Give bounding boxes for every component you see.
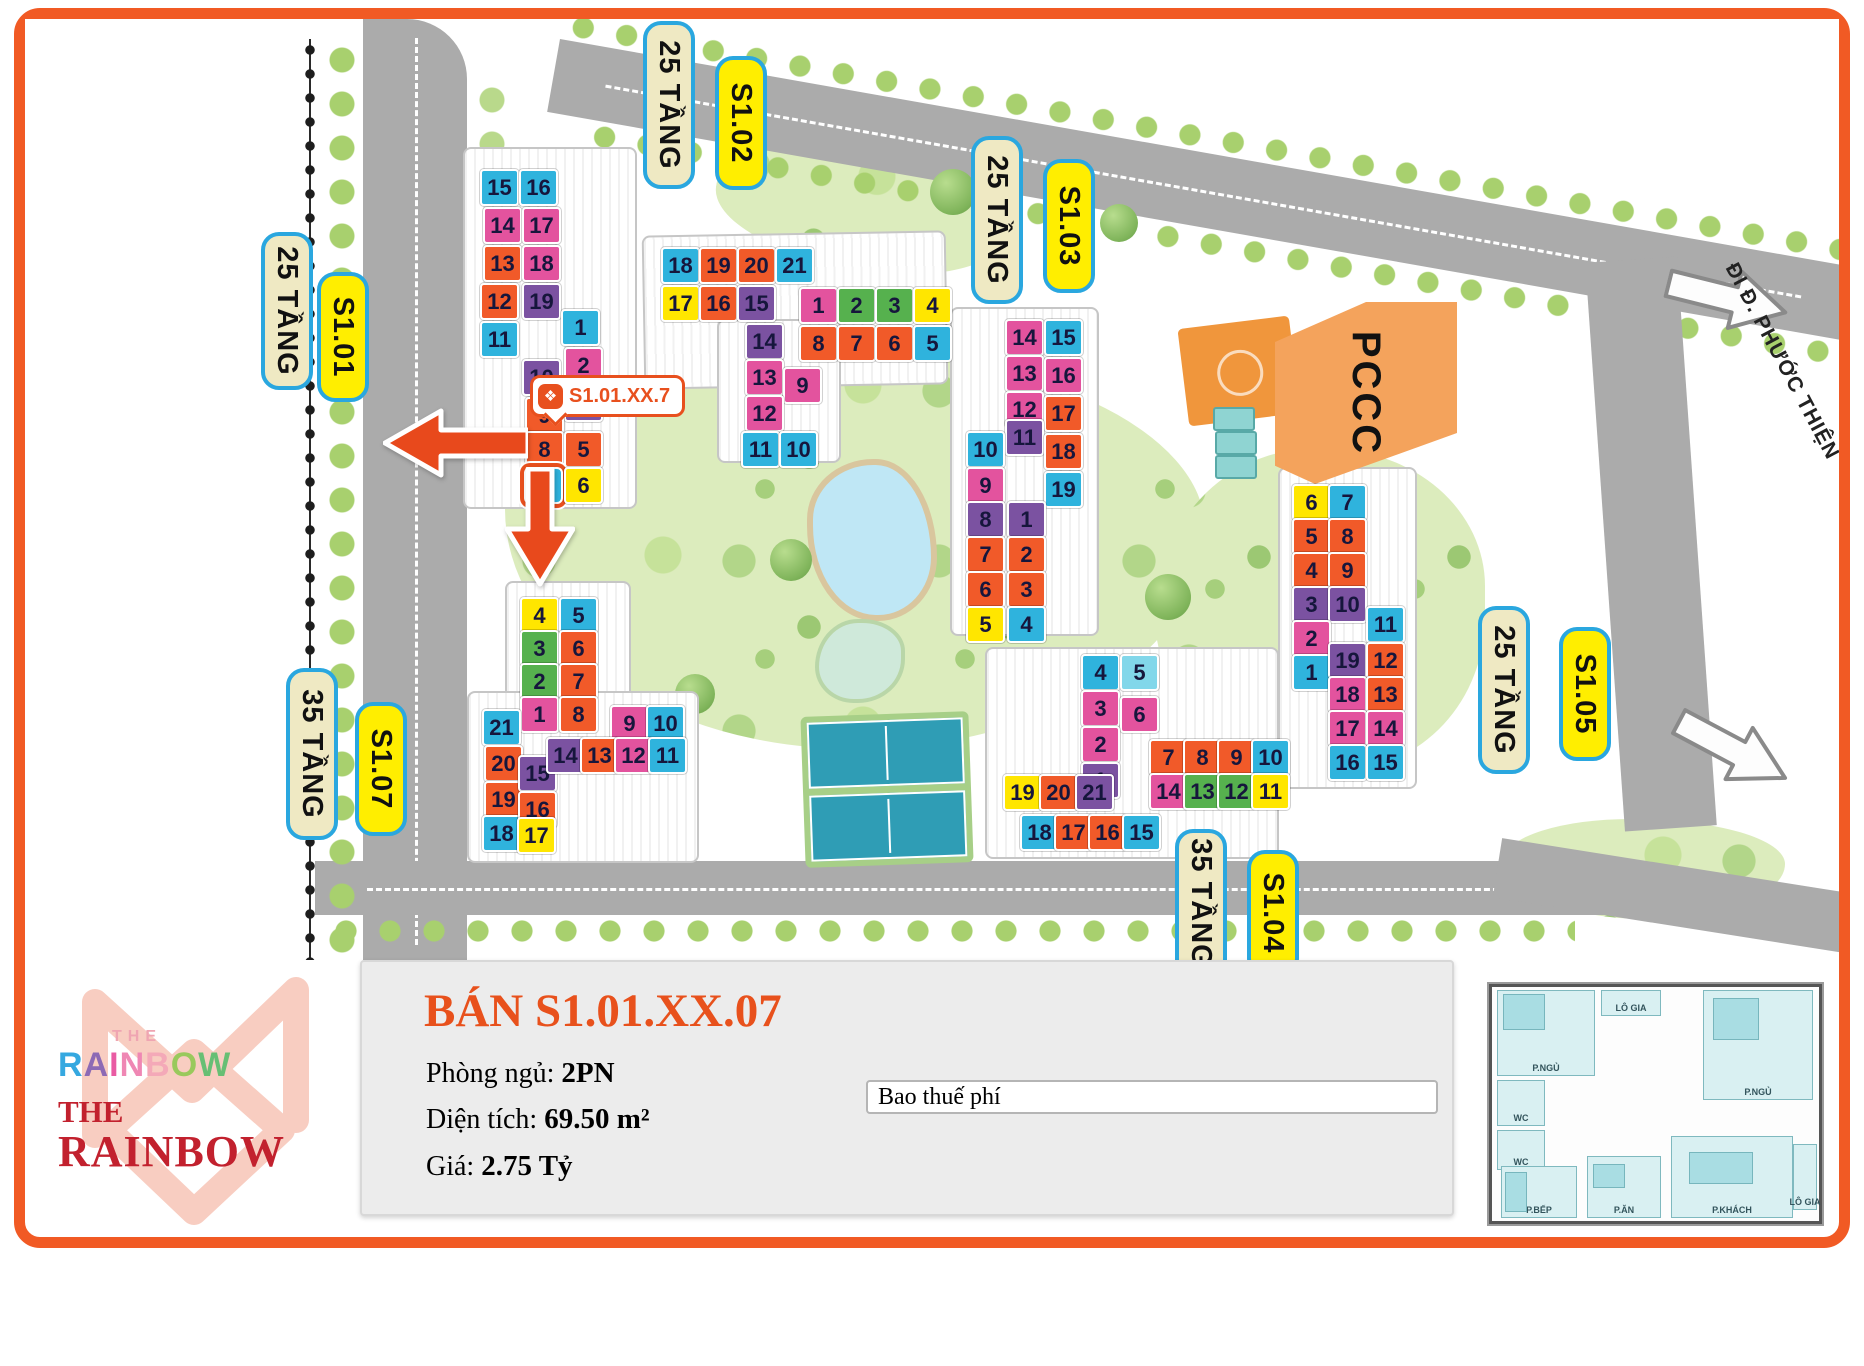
unit-tile-S1.02-11[interactable]: 11 xyxy=(741,431,780,468)
logo-letter: W xyxy=(198,1046,231,1084)
unit-tile-S1.04-20[interactable]: 20 xyxy=(1039,774,1078,811)
pccc-label: PCCC xyxy=(1344,330,1389,455)
south-pointer-arrow-icon xyxy=(505,467,575,587)
unit-tile-S1.07-3[interactable]: 3 xyxy=(520,630,559,667)
unit-tile-S1.05-13[interactable]: 13 xyxy=(1366,676,1405,713)
unit-marker-label: S1.01.XX.7 xyxy=(569,385,670,408)
unit-tile-S1.05-1[interactable]: 1 xyxy=(1292,654,1331,691)
label-floors-s105: 25 TẦNG xyxy=(1478,606,1530,774)
area-row: Diện tích: 69.50 m² xyxy=(426,1103,650,1136)
unit-tile-S1.04-5[interactable]: 5 xyxy=(1120,654,1159,691)
unit-tile-S1.05-7[interactable]: 7 xyxy=(1328,484,1367,521)
unit-tile-S1.04-6[interactable]: 6 xyxy=(1120,696,1159,733)
bottom-treeline xyxy=(325,919,1575,943)
furniture xyxy=(1505,1172,1527,1212)
unit-tile-S1.03-9[interactable]: 9 xyxy=(966,467,1005,504)
unit-tile-S1.02-8[interactable]: 8 xyxy=(799,325,838,362)
playground-equipment xyxy=(1215,455,1257,479)
unit-tile-S1.01-18[interactable]: 18 xyxy=(522,245,561,282)
listing-title: BÁN S1.01.XX.07 xyxy=(424,984,782,1038)
logo-the-serif: THE xyxy=(58,1094,123,1130)
unit-tile-S1.03-19[interactable]: 19 xyxy=(1044,471,1083,508)
label-building-s101: S1.01 xyxy=(317,272,369,402)
unit-tile-S1.03-8[interactable]: 8 xyxy=(966,501,1005,538)
unit-tile-S1.07-18[interactable]: 18 xyxy=(482,815,521,852)
unit-tile-S1.01-1[interactable]: 1 xyxy=(561,309,600,346)
unit-tile-S1.03-1[interactable]: 1 xyxy=(1007,501,1046,538)
logo-rainbow-serif: RAINBOW xyxy=(58,1126,285,1177)
room-label: P.ĂN xyxy=(1614,1205,1634,1217)
logo-the-small: THE xyxy=(112,1028,162,1046)
logo-letter: R xyxy=(58,1046,84,1084)
label-building-s105: S1.05 xyxy=(1559,627,1611,761)
listing-panel: BÁN S1.01.XX.07 Phòng ngủ: 2PN Diện tích… xyxy=(360,960,1454,1216)
unit-tile-S1.05-5[interactable]: 5 xyxy=(1292,518,1331,555)
unit-tile-S1.01-17[interactable]: 17 xyxy=(522,207,561,244)
room-3: WC xyxy=(1497,1080,1545,1126)
unit-tile-S1.03-2[interactable]: 2 xyxy=(1007,536,1046,573)
unit-tile-S1.07-17[interactable]: 17 xyxy=(517,817,556,854)
unit-tile-S1.02-1[interactable]: 1 xyxy=(799,287,838,324)
unit-tile-S1.02-21[interactable]: 21 xyxy=(775,247,814,284)
playground-equipment xyxy=(1213,407,1255,431)
room-8: LÔ GIA xyxy=(1793,1144,1817,1210)
unit-tile-S1.05-12[interactable]: 12 xyxy=(1366,642,1405,679)
unit-tile-S1.04-4[interactable]: 4 xyxy=(1081,654,1120,691)
unit-marker[interactable]: ❖ S1.01.XX.7 xyxy=(530,375,685,417)
unit-tile-S1.07-2[interactable]: 2 xyxy=(520,663,559,700)
label-floors-s102: 25 TẦNG xyxy=(643,21,695,189)
unit-tile-S1.01-13[interactable]: 13 xyxy=(483,245,522,282)
unit-tile-S1.05-6[interactable]: 6 xyxy=(1292,484,1331,521)
unit-tile-S1.02-3[interactable]: 3 xyxy=(875,287,914,324)
unit-tile-S1.01-14[interactable]: 14 xyxy=(483,207,522,244)
unit-tile-S1.05-3[interactable]: 3 xyxy=(1292,586,1331,623)
unit-tile-S1.02-16[interactable]: 16 xyxy=(699,285,738,322)
unit-tile-S1.03-13[interactable]: 13 xyxy=(1005,355,1044,392)
unit-tile-S1.02-15[interactable]: 15 xyxy=(737,285,776,322)
unit-tile-S1.03-11[interactable]: 11 xyxy=(1005,419,1044,456)
unit-tile-S1.05-15[interactable]: 15 xyxy=(1366,744,1405,781)
unit-tile-S1.05-8[interactable]: 8 xyxy=(1328,518,1367,555)
price-row: Giá: 2.75 Tỷ xyxy=(426,1150,573,1183)
unit-tile-S1.02-10[interactable]: 10 xyxy=(779,431,818,468)
unit-tile-S1.07-1[interactable]: 1 xyxy=(520,696,559,733)
room-label: P.NGỦ xyxy=(1532,1063,1559,1075)
unit-tile-S1.03-16[interactable]: 16 xyxy=(1044,357,1083,394)
unit-tile-S1.05-19[interactable]: 19 xyxy=(1328,642,1367,679)
unit-tile-S1.01-5[interactable]: 5 xyxy=(564,431,603,468)
unit-tile-S1.04-2[interactable]: 2 xyxy=(1081,726,1120,763)
unit-tile-S1.05-17[interactable]: 17 xyxy=(1328,710,1367,747)
unit-tile-S1.04-10[interactable]: 10 xyxy=(1251,739,1290,776)
unit-tile-S1.02-20[interactable]: 20 xyxy=(737,247,776,284)
unit-tile-S1.02-12[interactable]: 12 xyxy=(745,395,784,432)
unit-tile-S1.02-4[interactable]: 4 xyxy=(913,287,952,324)
pccc-zone: PCCC xyxy=(1275,302,1457,484)
label-building-s103: S1.03 xyxy=(1043,159,1095,293)
note-input[interactable] xyxy=(866,1080,1438,1114)
bottom-road xyxy=(315,861,1605,915)
unit-tile-S1.02-19[interactable]: 19 xyxy=(699,247,738,284)
unit-tile-S1.05-14[interactable]: 14 xyxy=(1366,710,1405,747)
label-floors-s101: 25 TẦNG xyxy=(261,232,313,390)
furniture xyxy=(1593,1164,1625,1188)
brand-logo: THE RAINBOW THE RAINBOW xyxy=(58,958,368,1238)
unit-tile-S1.03-4[interactable]: 4 xyxy=(1007,606,1046,643)
unit-tile-S1.07-8[interactable]: 8 xyxy=(559,696,598,733)
unit-tile-S1.03-7[interactable]: 7 xyxy=(966,536,1005,573)
unit-tile-S1.02-18[interactable]: 18 xyxy=(661,247,700,284)
room-label: LÔ GIA xyxy=(1616,1003,1647,1015)
unit-tile-S1.05-11[interactable]: 11 xyxy=(1366,606,1405,643)
room-4: WC xyxy=(1497,1130,1545,1170)
unit-tile-S1.05-16[interactable]: 16 xyxy=(1328,744,1367,781)
furniture xyxy=(1503,994,1545,1030)
unit-tile-S1.05-10[interactable]: 10 xyxy=(1328,586,1367,623)
unit-tile-S1.07-6[interactable]: 6 xyxy=(559,630,598,667)
unit-tile-S1.05-18[interactable]: 18 xyxy=(1328,676,1367,713)
label-building-s107: S1.07 xyxy=(355,702,407,836)
rainbow-logo-icon: ❖ xyxy=(538,384,563,409)
unit-tile-S1.03-6[interactable]: 6 xyxy=(966,571,1005,608)
bedrooms-value: 2PN xyxy=(561,1057,614,1089)
unit-tile-S1.04-11[interactable]: 11 xyxy=(1251,773,1290,810)
unit-tile-S1.02-9[interactable]: 9 xyxy=(783,367,822,404)
room-1: LÔ GIA xyxy=(1601,990,1661,1016)
label-floors-s103: 25 TẦNG xyxy=(971,136,1023,304)
unit-tile-S1.02-2[interactable]: 2 xyxy=(837,287,876,324)
unit-tile-S1.05-2[interactable]: 2 xyxy=(1292,620,1331,657)
unit-tile-S1.03-3[interactable]: 3 xyxy=(1007,571,1046,608)
unit-tile-S1.01-16[interactable]: 16 xyxy=(519,169,558,206)
unit-tile-S1.02-7[interactable]: 7 xyxy=(837,325,876,362)
unit-tile-S1.05-4[interactable]: 4 xyxy=(1292,552,1331,589)
area-value: 69.50 m² xyxy=(544,1103,649,1135)
unit-tile-S1.03-5[interactable]: 5 xyxy=(966,606,1005,643)
room-label: P.BẾP xyxy=(1526,1205,1552,1217)
unit-tile-S1.03-10[interactable]: 10 xyxy=(966,431,1005,468)
unit-tile-S1.01-8[interactable]: 8 xyxy=(525,431,564,468)
unit-tile-S1.04-15[interactable]: 15 xyxy=(1122,814,1161,851)
playground-equipment xyxy=(1215,431,1257,455)
unit-tile-S1.07-7[interactable]: 7 xyxy=(559,663,598,700)
room-label: WC xyxy=(1514,1113,1529,1125)
unit-tile-S1.01-19[interactable]: 19 xyxy=(522,283,561,320)
unit-tile-S1.02-5[interactable]: 5 xyxy=(913,325,952,362)
unit-tile-S1.07-5[interactable]: 5 xyxy=(559,597,598,634)
unit-tile-S1.02-17[interactable]: 17 xyxy=(661,285,700,322)
room-label: LÔ GIA xyxy=(1790,1197,1821,1209)
unit-tile-S1.02-14[interactable]: 14 xyxy=(745,323,784,360)
room-label: P.NGỦ xyxy=(1744,1087,1771,1099)
unit-tile-S1.02-13[interactable]: 13 xyxy=(745,359,784,396)
unit-tile-S1.05-9[interactable]: 9 xyxy=(1328,552,1367,589)
unit-tile-S1.04-19[interactable]: 19 xyxy=(1003,774,1042,811)
logo-rainbow-colored: RAINBOW xyxy=(58,1046,231,1085)
label-floors-s107: 35 TẦNG xyxy=(286,668,338,840)
unit-tile-S1.02-6[interactable]: 6 xyxy=(875,325,914,362)
furniture xyxy=(1689,1152,1753,1184)
tennis-courts xyxy=(800,711,973,868)
unit-tile-S1.03-17[interactable]: 17 xyxy=(1044,395,1083,432)
floorplan-image: P.NGỦLÔ GIAP.NGỦWCWCP.BẾPP.ĂNP.KHÁCHLÔ G… xyxy=(1487,982,1824,1226)
logo-letter: B xyxy=(145,1046,171,1084)
price-value: 2.75 Tỷ xyxy=(481,1150,572,1182)
unit-tile-S1.04-21[interactable]: 21 xyxy=(1075,774,1114,811)
unit-tile-S1.07-11[interactable]: 11 xyxy=(648,737,687,774)
label-building-s104: S1.04 xyxy=(1247,850,1299,960)
unit-tile-S1.07-4[interactable]: 4 xyxy=(520,597,559,634)
unit-tile-S1.07-21[interactable]: 21 xyxy=(482,709,521,746)
unit-tile-S1.01-12[interactable]: 12 xyxy=(480,283,519,320)
unit-tile-S1.03-15[interactable]: 15 xyxy=(1044,319,1083,356)
furniture xyxy=(1713,998,1759,1040)
rainbow-monogram-icon xyxy=(70,960,320,1225)
label-floors-s104: 35 TẦNG xyxy=(1175,829,1227,960)
site-map: PCCC 1516141713181219111210398576 181920… xyxy=(25,19,1839,960)
logo-letter: O xyxy=(171,1046,198,1084)
unit-tile-S1.03-14[interactable]: 14 xyxy=(1005,319,1044,356)
room-label: P.KHÁCH xyxy=(1712,1205,1752,1217)
unit-tile-S1.03-18[interactable]: 18 xyxy=(1044,433,1083,470)
unit-tile-S1.04-3[interactable]: 3 xyxy=(1081,690,1120,727)
logo-letter: A xyxy=(84,1046,110,1084)
unit-tile-S1.01-15[interactable]: 15 xyxy=(480,169,519,206)
unit-tile-S1.01-11[interactable]: 11 xyxy=(480,321,519,358)
bedrooms-row: Phòng ngủ: 2PN xyxy=(426,1057,615,1090)
label-building-s102: S1.02 xyxy=(715,56,767,190)
logo-letter: N xyxy=(120,1046,146,1084)
logo-letter: I xyxy=(109,1046,119,1084)
